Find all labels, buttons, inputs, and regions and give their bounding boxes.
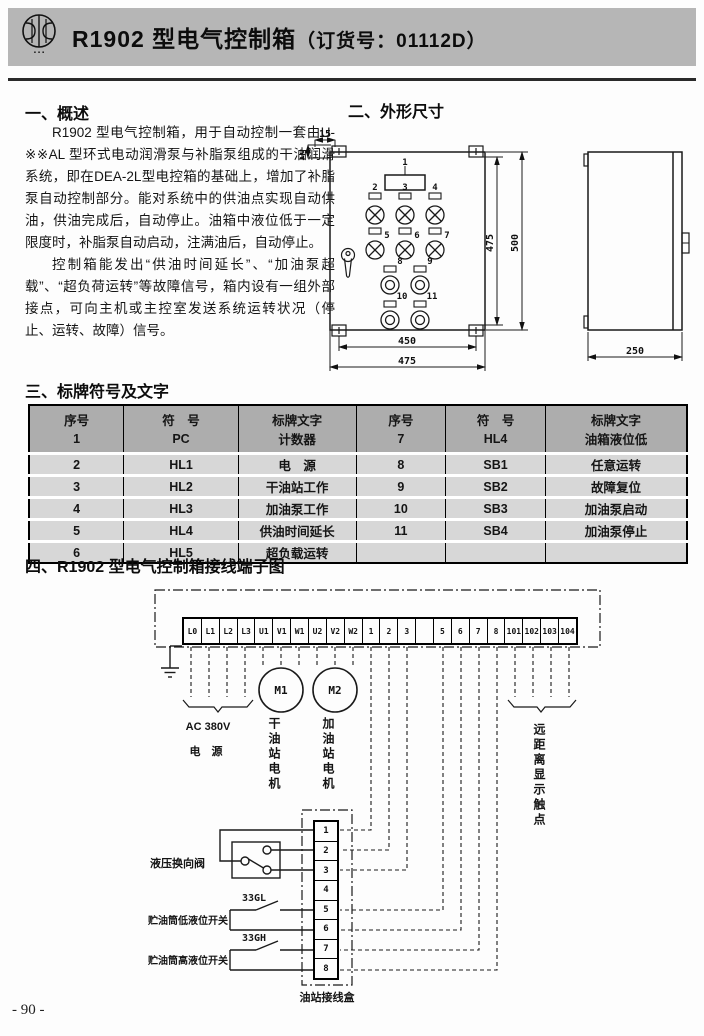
- terminal-cell: 101: [504, 619, 522, 643]
- cell-no: 2: [29, 454, 124, 476]
- motor2-name-label: 加油站电机: [320, 717, 337, 792]
- terminal-cell: 104: [558, 619, 576, 643]
- dim-label-475-inner: 475: [485, 234, 496, 252]
- section-1-heading: 一、概述: [25, 100, 89, 124]
- terminal-strip: L0 L1 L2 L3 U1 V1 W1 U2 V2 W2 1 2 3 5 6 …: [182, 617, 578, 645]
- cell-no: 5: [29, 520, 124, 542]
- dimension-drawing-svg: 1 2 3 4 5 6 7 8 9 10 11 15 10 475 500 45…: [300, 125, 704, 383]
- section-4-heading: 四、R1902 型电气控制箱接线端子图: [25, 553, 285, 577]
- header-rule: [8, 78, 696, 81]
- junction-box-label: 油站接线盒: [282, 989, 372, 1005]
- dimension-drawing: 1 2 3 4 5 6 7 8 9 10 11 15 10 475 500 45…: [300, 125, 704, 383]
- dim-label-10: 10: [300, 149, 307, 161]
- cell-sym: HL4: [124, 520, 239, 542]
- dim-label-15: 15: [319, 129, 331, 140]
- cell-sym: HL1: [124, 454, 239, 476]
- wiring-diagram: M1 M2: [0, 575, 704, 1010]
- cabinet-side-view: [584, 152, 689, 330]
- panel-item-label: 9: [427, 257, 432, 267]
- cell-no: 10: [356, 498, 446, 520]
- cell-sym: HL3: [124, 498, 239, 520]
- junction-cell: 1: [315, 822, 337, 841]
- power-brace: [183, 700, 253, 712]
- terminal-cell: [415, 619, 433, 643]
- panel-item-label: 4: [432, 183, 438, 193]
- terminal-cell: 2: [379, 619, 397, 643]
- power-wires: [191, 647, 245, 697]
- col-header-text: 标牌文字: [238, 405, 356, 429]
- junction-terminal-strip: 1 2 3 4 5 6 7 8: [313, 820, 339, 980]
- cell-sym: PC: [124, 429, 239, 454]
- terminal-cell: 103: [540, 619, 558, 643]
- col-header-sym: 符 号: [446, 405, 546, 429]
- hydraulic-valve-symbol: [220, 830, 313, 878]
- overview-text: R1902 型电气控制箱，用于自动控制一套由U-※※AL 型环式电动润滑泵与补脂…: [25, 122, 335, 342]
- cell-text: [545, 542, 687, 564]
- cell-text: 加油泵停止: [545, 520, 687, 542]
- terminal-cell: 5: [433, 619, 451, 643]
- nameplate-table: 序号 符 号 标牌文字 序号 符 号 标牌文字 1 PC 计数器 7 HL4 油…: [28, 404, 688, 564]
- signal-lamp-icons: [366, 206, 444, 259]
- overview-paragraph-1: R1902 型电气控制箱，用于自动控制一套由U-※※AL 型环式电动润滑泵与补脂…: [25, 122, 335, 254]
- high-level-switch-symbol: [230, 941, 313, 970]
- cell-text: 供油时间延长: [238, 520, 356, 542]
- cell-text: 加油泵启动: [545, 498, 687, 520]
- overview-paragraph-2: 控制箱能发出“供油时间延长”、“加油泵超载”、“超负荷运转”等故障信号，箱内设有…: [25, 254, 335, 342]
- junction-cell: 5: [315, 900, 337, 920]
- junction-cell: 6: [315, 919, 337, 939]
- cell-no: 4: [29, 498, 124, 520]
- ground-symbol-icon: [161, 646, 182, 677]
- cell-sym: HL4: [446, 429, 546, 454]
- power-label-line2: 电 源: [168, 743, 248, 759]
- motor1-name-label: 干油站电机: [266, 717, 283, 792]
- panel-item-label: 8: [397, 257, 402, 267]
- terminal-cell: L3: [237, 619, 255, 643]
- terminal-cell: 3: [397, 619, 415, 643]
- remote-brace: [508, 700, 576, 712]
- logo-subtext: ▪▪▪: [20, 50, 60, 56]
- col-header-text: 标牌文字: [545, 405, 687, 429]
- junction-cell: 7: [315, 939, 337, 959]
- terminal-cell: 102: [522, 619, 540, 643]
- cell-sym: SB3: [446, 498, 546, 520]
- cell-no: 3: [29, 476, 124, 498]
- col-header-no: 序号: [29, 405, 124, 429]
- terminal-cell: V2: [326, 619, 344, 643]
- dim-label-500: 500: [510, 234, 521, 252]
- document-page: ▪▪▪ R1902 型电气控制箱（订货号：01112D） 一、概述 R1902 …: [0, 0, 704, 1036]
- terminal-cell: L1: [201, 619, 219, 643]
- low-switch-label: 贮油筒低液位开关: [148, 912, 228, 927]
- cell-no: 11: [356, 520, 446, 542]
- section-2-heading: 二、外形尺寸: [348, 98, 444, 122]
- junction-cell: 8: [315, 958, 337, 978]
- table-row: 2 HL1 电 源 8 SB1 任意运转: [29, 454, 687, 476]
- terminal-cell: L2: [219, 619, 237, 643]
- panel-item-label: 5: [384, 231, 389, 241]
- cell-text: 计数器: [238, 429, 356, 454]
- dim-label-450: 450: [398, 336, 416, 347]
- junction-cell: 4: [315, 880, 337, 900]
- cell-sym: [446, 542, 546, 564]
- panel-item-label: 1: [402, 158, 407, 168]
- push-button-icons: [381, 276, 429, 329]
- cell-no: 1: [29, 429, 124, 454]
- motor2-wires: [317, 647, 353, 668]
- cell-sym: HL2: [124, 476, 239, 498]
- cell-sym: SB4: [446, 520, 546, 542]
- cell-text: 任意运转: [545, 454, 687, 476]
- panel-item-label: 7: [444, 231, 449, 241]
- cell-no: 9: [356, 476, 446, 498]
- dim-label-250: 250: [626, 346, 644, 357]
- terminal-cell: 6: [451, 619, 469, 643]
- table-row: 1 PC 计数器 7 HL4 油箱液位低: [29, 429, 687, 454]
- dim-label-475-outer: 475: [398, 356, 416, 367]
- power-label-line1: AC 380V: [168, 721, 248, 733]
- col-header-no: 序号: [356, 405, 446, 429]
- panel-item-label: 11: [427, 292, 438, 302]
- table-row: 4 HL3 加油泵工作 10 SB3 加油泵启动: [29, 498, 687, 520]
- terminal-cell: 7: [469, 619, 487, 643]
- panel-item-label: 3: [402, 183, 407, 193]
- table-row: 5 HL4 供油时间延长 11 SB4 加油泵停止: [29, 520, 687, 542]
- low-switch-tag: 33GL: [242, 893, 266, 904]
- high-switch-label: 贮油筒高液位开关: [148, 952, 228, 967]
- cabinet-front-view: [330, 146, 485, 336]
- header-band: ▪▪▪ R1902 型电气控制箱（订货号：01112D）: [8, 8, 696, 66]
- low-level-switch-symbol: [230, 901, 313, 930]
- motor1-wires: [263, 647, 299, 668]
- cell-sym: SB2: [446, 476, 546, 498]
- dimension-labels: 15 10 475 500 450 475 250: [300, 129, 644, 367]
- cell-no: 8: [356, 454, 446, 476]
- valve-label: 液压换向阀: [150, 855, 205, 871]
- page-number: - 90 -: [12, 1002, 45, 1019]
- terminal-cell: V1: [272, 619, 290, 643]
- junction-wires: [340, 647, 497, 970]
- cell-text: 油箱液位低: [545, 429, 687, 454]
- panel-item-label: 10: [397, 292, 408, 302]
- junction-cell: 3: [315, 860, 337, 880]
- terminal-cell: 8: [487, 619, 505, 643]
- terminal-cell: U1: [254, 619, 272, 643]
- cell-no: [356, 542, 446, 564]
- remote-contact-wires: [515, 647, 569, 697]
- motor1-label: M1: [274, 684, 288, 697]
- table-header-row: 序号 符 号 标牌文字 序号 符 号 标牌文字: [29, 405, 687, 429]
- page-title: R1902 型电气控制箱（订货号：01112D）: [72, 20, 487, 54]
- col-header-sym: 符 号: [124, 405, 239, 429]
- cell-sym: SB1: [446, 454, 546, 476]
- table-row: 3 HL2 干油站工作 9 SB2 故障复位: [29, 476, 687, 498]
- cell-text: 加油泵工作: [238, 498, 356, 520]
- cell-no: 7: [356, 429, 446, 454]
- terminal-cell: W1: [290, 619, 308, 643]
- cell-text: 干油站工作: [238, 476, 356, 498]
- terminal-cell: 1: [362, 619, 380, 643]
- section-3-heading: 三、标牌符号及文字: [25, 378, 169, 402]
- terminal-cell: W2: [344, 619, 362, 643]
- panel-item-label: 6: [414, 231, 419, 241]
- panel-item-label: 2: [372, 183, 377, 193]
- key-switch-icon: [342, 249, 355, 278]
- terminal-cell: L0: [184, 619, 201, 643]
- cell-text: 电 源: [238, 454, 356, 476]
- terminal-cell: U2: [308, 619, 326, 643]
- high-switch-tag: 33GH: [242, 933, 266, 944]
- remote-contact-label: 远距离显示触点: [531, 723, 548, 828]
- motor2-label: M2: [328, 684, 341, 697]
- cell-text: 故障复位: [545, 476, 687, 498]
- junction-cell: 2: [315, 841, 337, 861]
